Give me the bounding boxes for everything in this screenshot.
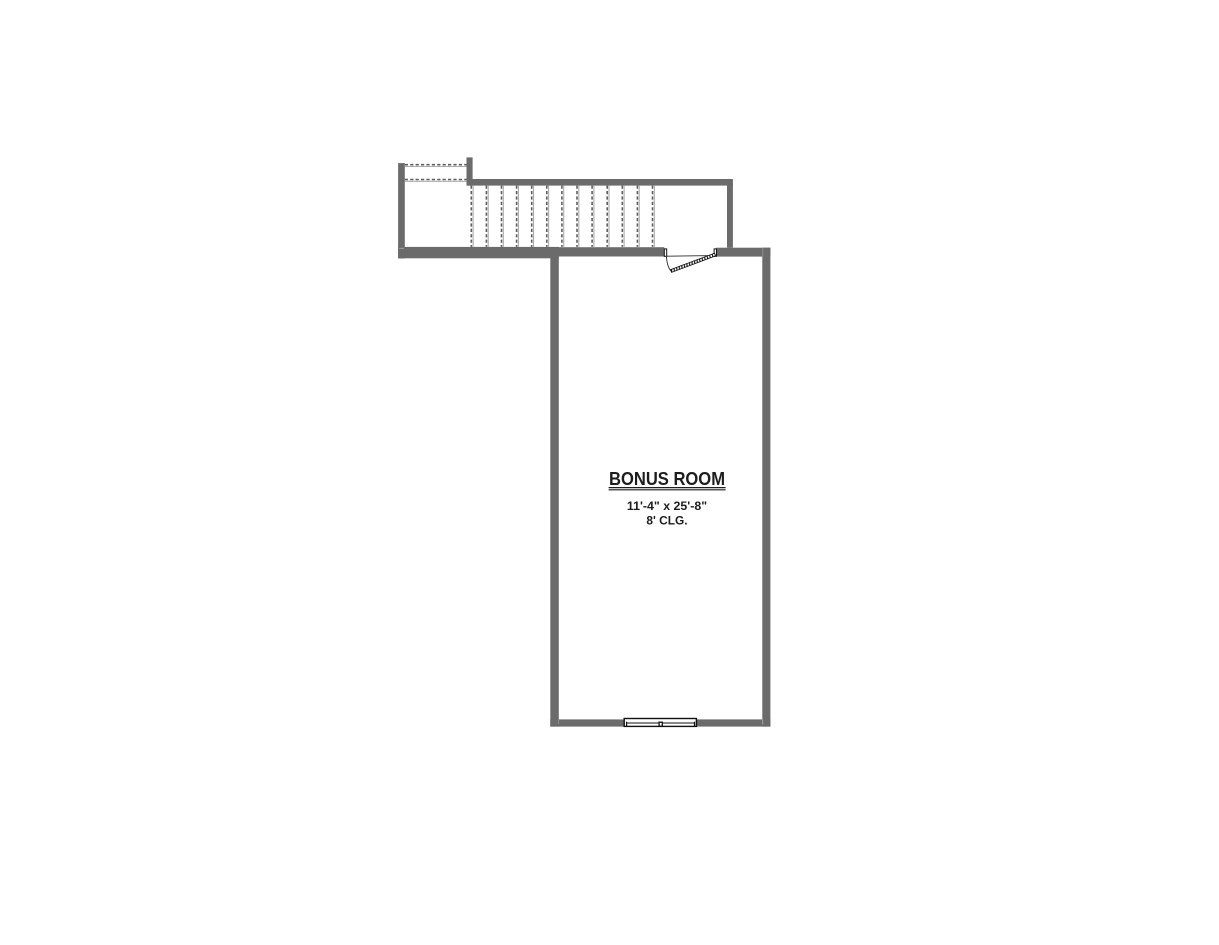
svg-text:11'-4" x 25'-8": 11'-4" x 25'-8" (627, 499, 707, 513)
svg-text:8' CLG.: 8' CLG. (646, 514, 687, 528)
svg-text:BONUS ROOM: BONUS ROOM (609, 469, 725, 489)
